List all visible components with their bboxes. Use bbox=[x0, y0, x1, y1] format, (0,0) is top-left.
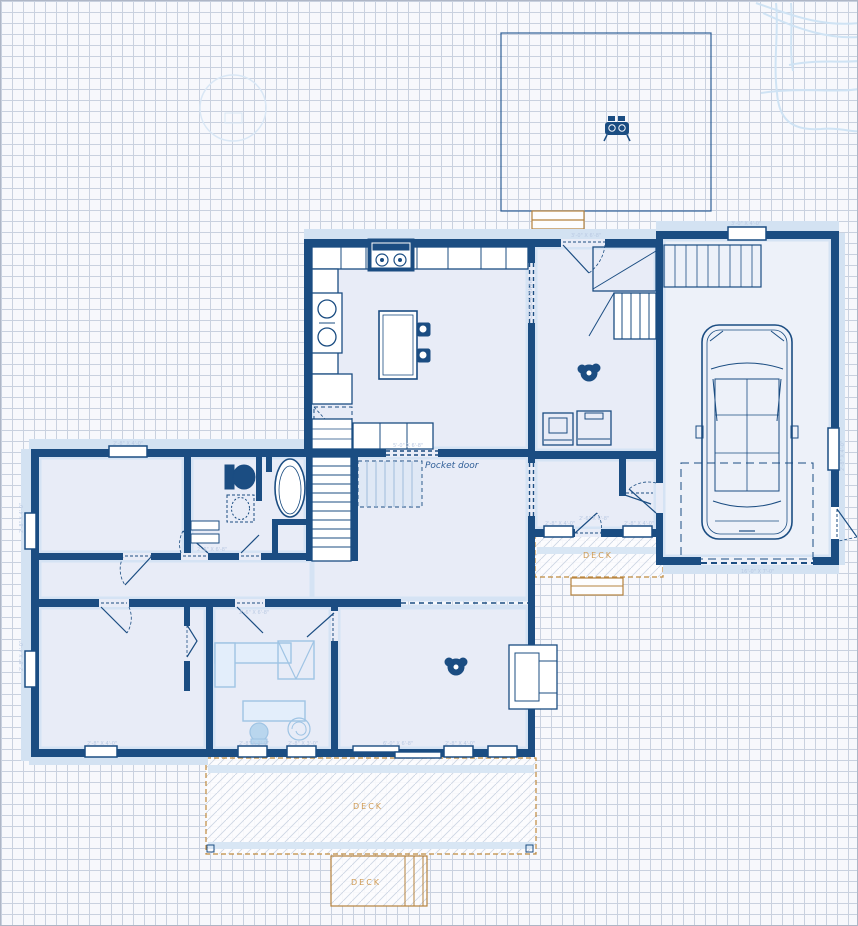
deck-right-label: DECK bbox=[583, 551, 613, 560]
fireplace-icon bbox=[509, 645, 557, 709]
window bbox=[25, 651, 36, 687]
dimension-label: 2'-8" X 4'-0" bbox=[840, 441, 846, 471]
window bbox=[488, 746, 517, 757]
deck-main-label: DECK bbox=[353, 802, 383, 811]
dimension-label: 3'-0" X 6'-8" bbox=[571, 233, 601, 239]
floor-plan-canvas[interactable]: DECK DECK DECK Pocket door 2'-8" X 4'-0"… bbox=[0, 0, 858, 926]
stool-icon bbox=[417, 323, 430, 336]
range-icon bbox=[368, 239, 414, 271]
dimension-label: 16'-0" X 7'-0" bbox=[741, 569, 774, 575]
room-entry bbox=[535, 247, 656, 451]
dimension-label: 2'-8" X 4'-0" bbox=[624, 521, 654, 527]
dimension-label: 2'-6" X 6'-8" bbox=[239, 610, 269, 616]
stairs-main[interactable] bbox=[312, 457, 351, 561]
dimension-label: 2'-6" X 6'-8" bbox=[197, 547, 227, 553]
dimension-label: 2'-8" X 4'-0" bbox=[19, 503, 25, 533]
window bbox=[287, 746, 316, 757]
stairs-open-below[interactable] bbox=[358, 461, 422, 507]
dimension-label: 2'-8" X 4'-0" bbox=[445, 741, 475, 747]
window bbox=[25, 513, 36, 549]
patio-outline[interactable] bbox=[501, 33, 711, 211]
dimension-label: 5'-0" X 6'-8" bbox=[393, 443, 423, 449]
room-living bbox=[338, 607, 528, 749]
dimension-label: 6'-0" X 6'-8" bbox=[383, 741, 413, 747]
deck-small-label: DECK bbox=[351, 878, 381, 887]
window bbox=[544, 526, 573, 537]
dimension-label: 2'-6" X 6'-8" bbox=[579, 516, 609, 522]
stool-icon bbox=[417, 349, 430, 362]
window bbox=[828, 428, 839, 470]
dimension-label: 2'-8" X 4'-0" bbox=[87, 741, 117, 747]
dimension-label: 3'-0" X 4'-0" bbox=[731, 221, 761, 227]
toilet-icon bbox=[225, 465, 255, 489]
dimension-label: 2'-8" X 4'-0" bbox=[19, 641, 25, 671]
room-hallway bbox=[39, 560, 338, 599]
bathtub-icon bbox=[275, 459, 305, 517]
dimension-label: 2'-8" X 3'-0" bbox=[288, 741, 318, 747]
dimension-label: 2'-8" X 3'-0" bbox=[239, 741, 269, 747]
rooms[interactable] bbox=[39, 239, 831, 749]
hall-cabinets bbox=[312, 419, 352, 449]
deck-right[interactable] bbox=[535, 535, 663, 595]
window bbox=[238, 746, 267, 757]
window bbox=[623, 526, 652, 537]
pocket-door-note: Pocket door bbox=[425, 461, 480, 471]
grill-icon[interactable] bbox=[604, 116, 630, 141]
window bbox=[85, 746, 117, 757]
kitchen-island bbox=[379, 311, 417, 379]
window bbox=[728, 227, 766, 240]
pocket-door-hall-mud bbox=[528, 463, 535, 516]
window bbox=[109, 446, 147, 457]
dimension-label: 2'-8" X 4'-0" bbox=[545, 521, 575, 527]
desk-return bbox=[215, 643, 235, 687]
pocket-door-kitchen-dining bbox=[386, 449, 438, 457]
dimension-label: CASED OPENING bbox=[528, 277, 534, 319]
kitchen-counter-top bbox=[312, 247, 528, 269]
kitchen-base-cabinet bbox=[312, 374, 352, 404]
wall-oven-icon bbox=[312, 293, 342, 353]
terrain-contour-lines bbox=[756, 3, 858, 131]
tree-symbol[interactable] bbox=[200, 75, 266, 141]
room-master-bedroom bbox=[39, 457, 184, 553]
dimension-label: 2'-8" X 4'-0" bbox=[113, 441, 143, 447]
garage-door-opening bbox=[701, 557, 813, 565]
window bbox=[444, 746, 473, 757]
